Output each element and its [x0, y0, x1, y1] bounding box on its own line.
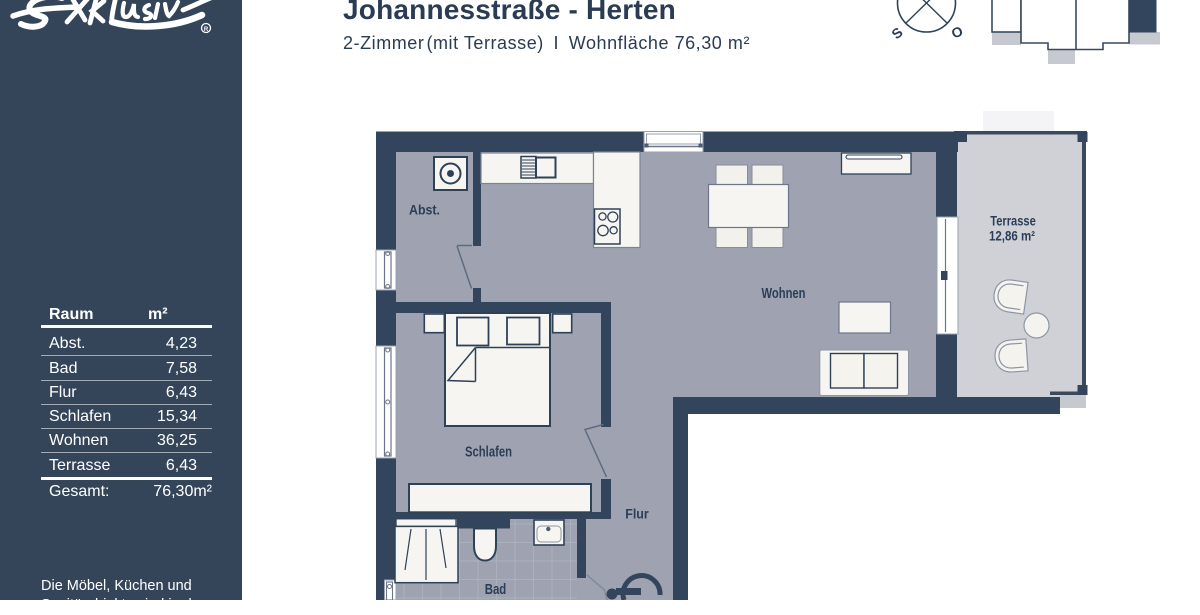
svg-text:Wohnen: Wohnen: [762, 285, 806, 302]
svg-text:12,86 m²: 12,86 m²: [989, 229, 1035, 244]
svg-text:Bad: Bad: [485, 582, 507, 598]
svg-text:Abst.: Abst.: [409, 203, 440, 218]
svg-text:S: S: [888, 24, 905, 42]
svg-text:Flur: Flur: [625, 506, 649, 522]
svg-text:O: O: [949, 23, 965, 42]
svg-text:Schlafen: Schlafen: [465, 445, 512, 461]
svg-text:Terrasse: Terrasse: [990, 214, 1036, 229]
